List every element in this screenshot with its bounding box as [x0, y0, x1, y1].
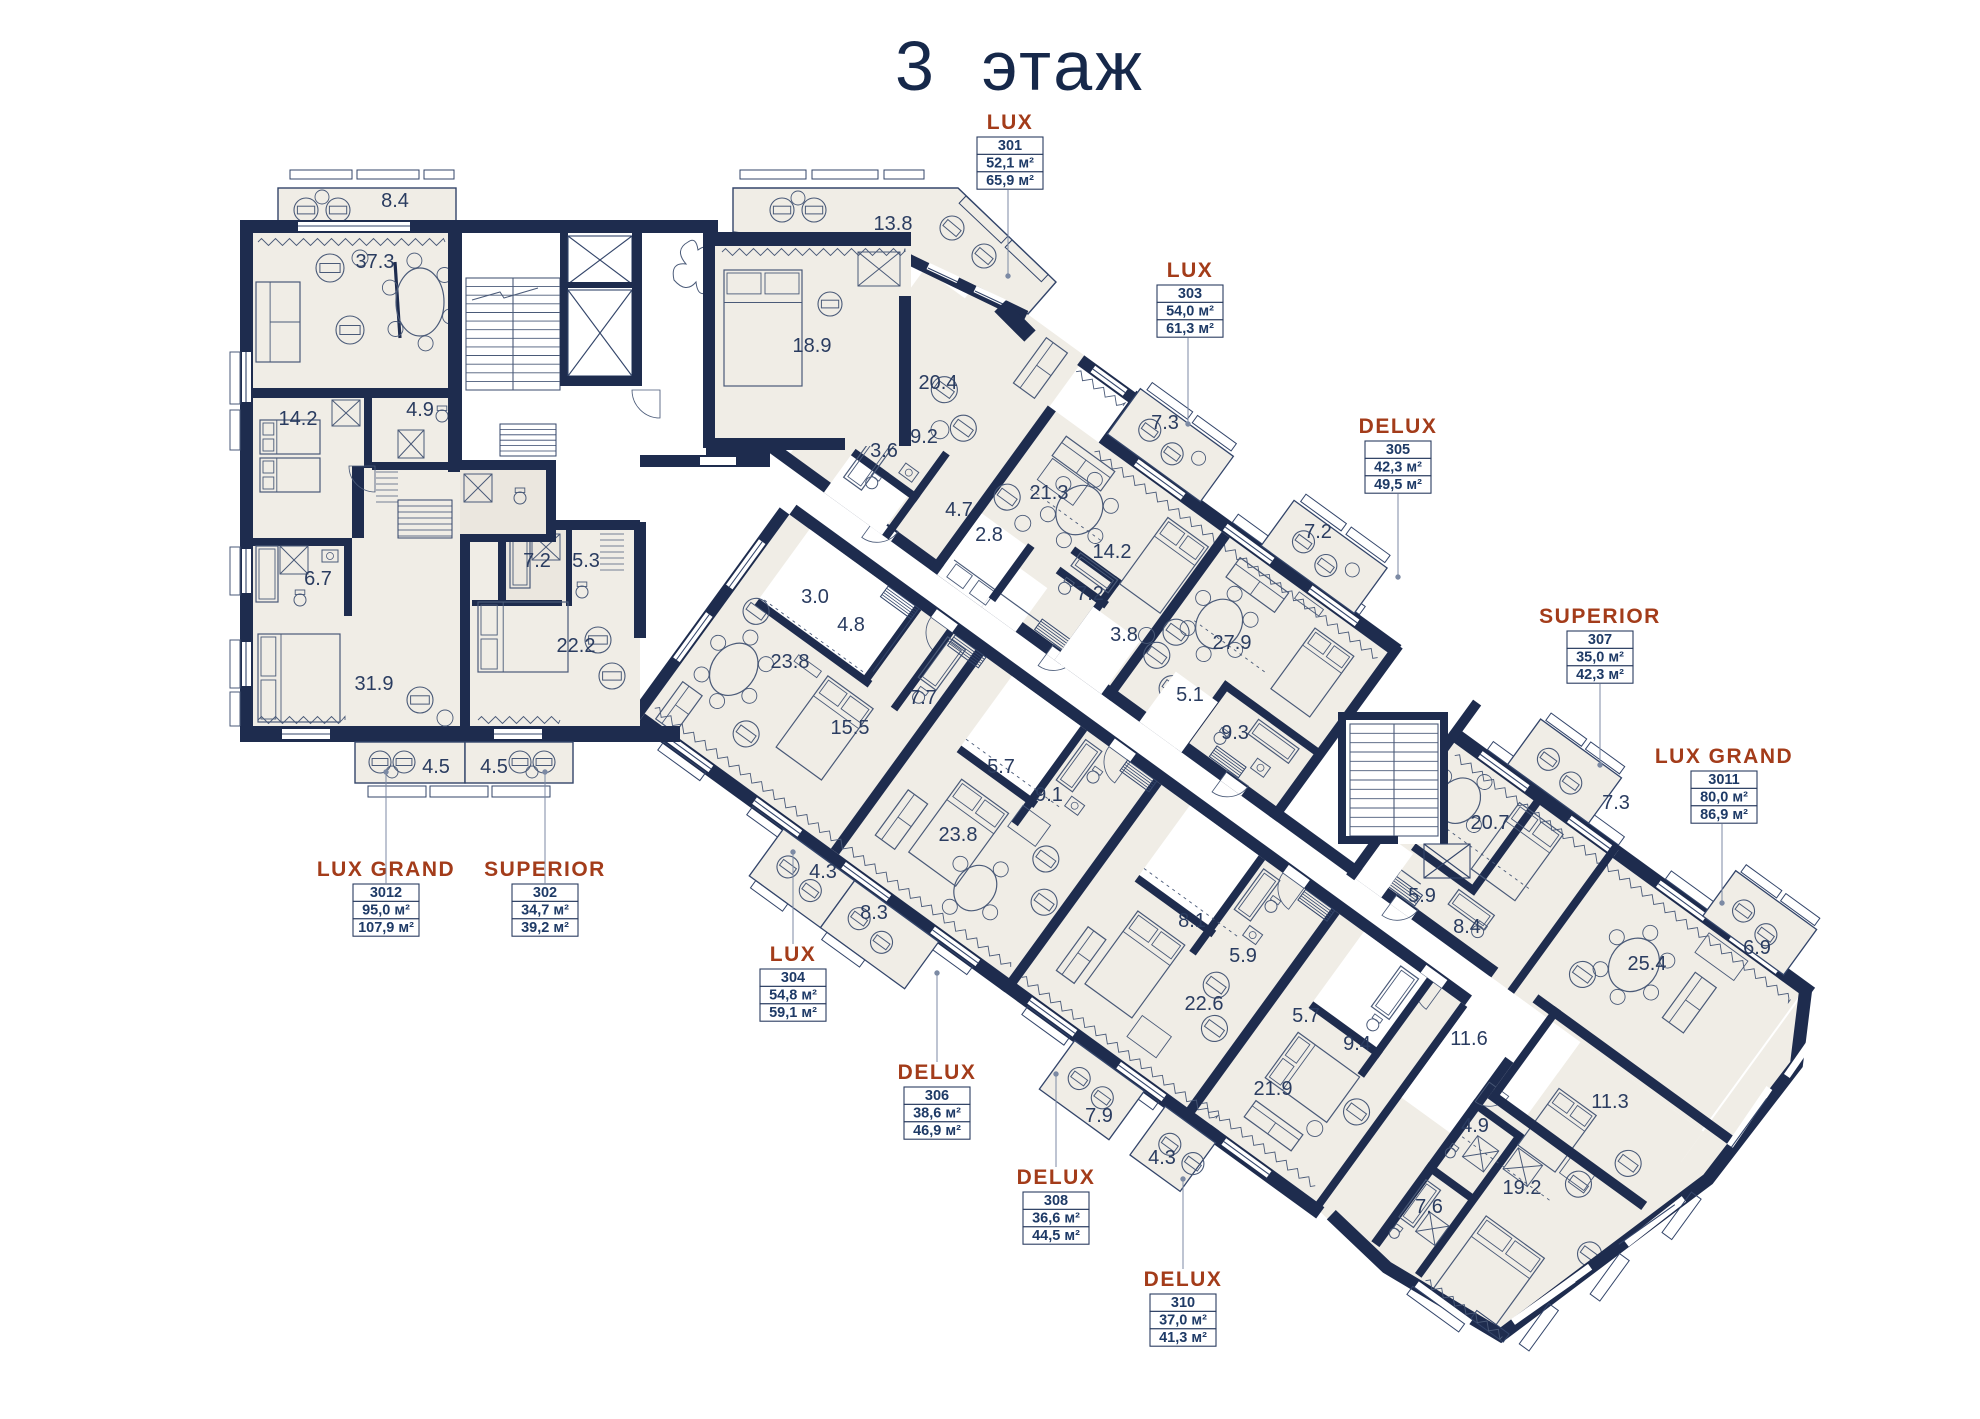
svg-text:15.5: 15.5 — [831, 717, 870, 739]
svg-text:4.3: 4.3 — [809, 861, 837, 883]
svg-text:25.4: 25.4 — [1628, 953, 1667, 975]
svg-text:14.2: 14.2 — [1093, 541, 1132, 563]
svg-text:95,0 м²: 95,0 м² — [362, 902, 410, 918]
svg-text:86,9 м²: 86,9 м² — [1700, 807, 1748, 823]
svg-text:LUX: LUX — [987, 111, 1034, 134]
svg-text:8.4: 8.4 — [381, 190, 409, 212]
svg-text:301: 301 — [998, 138, 1022, 154]
svg-text:8.1: 8.1 — [1178, 910, 1206, 932]
svg-text:38,6 м²: 38,6 м² — [913, 1105, 961, 1121]
svg-text:3.6: 3.6 — [870, 440, 898, 462]
svg-text:39,2 м²: 39,2 м² — [521, 920, 569, 936]
svg-text:4.5: 4.5 — [480, 756, 508, 778]
svg-text:42,3 м²: 42,3 м² — [1576, 667, 1624, 683]
svg-text:54,0 м²: 54,0 м² — [1166, 303, 1214, 319]
svg-text:7.6: 7.6 — [1415, 1196, 1443, 1218]
svg-text:LUX GRAND: LUX GRAND — [1655, 745, 1793, 768]
svg-text:7.9: 7.9 — [1085, 1105, 1113, 1127]
svg-text:41,3 м²: 41,3 м² — [1159, 1330, 1207, 1346]
svg-text:61,3 м²: 61,3 м² — [1166, 321, 1214, 337]
svg-text:49,5 м²: 49,5 м² — [1374, 477, 1422, 493]
svg-text:LUX: LUX — [770, 943, 817, 966]
svg-text:305: 305 — [1386, 442, 1410, 458]
svg-text:LUX: LUX — [1167, 259, 1214, 282]
svg-text:304: 304 — [781, 970, 805, 986]
svg-text:5.1: 5.1 — [1176, 684, 1204, 706]
svg-text:13.8: 13.8 — [874, 213, 913, 235]
svg-text:3.0: 3.0 — [801, 586, 829, 608]
svg-text:37,0 м²: 37,0 м² — [1159, 1312, 1207, 1328]
svg-text:2.8: 2.8 — [975, 524, 1003, 546]
svg-text:302: 302 — [533, 885, 557, 901]
svg-text:107,9 м²: 107,9 м² — [358, 920, 414, 936]
svg-text:34,7 м²: 34,7 м² — [521, 902, 569, 918]
svg-text:DELUX: DELUX — [1144, 1268, 1223, 1291]
svg-text:5.7: 5.7 — [987, 756, 1015, 778]
svg-text:4.3: 4.3 — [1148, 1147, 1176, 1169]
svg-text:14.2: 14.2 — [279, 408, 318, 430]
svg-text:303: 303 — [1178, 286, 1202, 302]
svg-text:31.9: 31.9 — [355, 673, 394, 695]
svg-text:8.4: 8.4 — [1453, 916, 1481, 938]
svg-text:4.5: 4.5 — [422, 756, 450, 778]
svg-text:7.3: 7.3 — [1151, 412, 1179, 434]
svg-text:46,9 м²: 46,9 м² — [913, 1123, 961, 1139]
svg-text:5.9: 5.9 — [1408, 885, 1436, 907]
svg-text:308: 308 — [1044, 1193, 1068, 1209]
svg-text:4.9: 4.9 — [406, 399, 434, 421]
svg-text:4.8: 4.8 — [837, 614, 865, 636]
svg-text:9.2: 9.2 — [910, 426, 938, 448]
svg-text:3 этаж: 3 этаж — [895, 27, 1145, 105]
svg-text:80,0 м²: 80,0 м² — [1700, 789, 1748, 805]
svg-text:DELUX: DELUX — [898, 1061, 977, 1084]
svg-text:SUPERIOR: SUPERIOR — [1539, 605, 1661, 628]
svg-text:307: 307 — [1588, 632, 1612, 648]
svg-text:5.3: 5.3 — [572, 550, 600, 572]
svg-text:11.6: 11.6 — [1450, 1028, 1487, 1050]
svg-text:20.4: 20.4 — [919, 372, 958, 394]
svg-text:27.9: 27.9 — [1213, 632, 1252, 654]
svg-text:7.7: 7.7 — [909, 687, 937, 709]
svg-text:44,5 м²: 44,5 м² — [1032, 1228, 1080, 1244]
svg-text:21.3: 21.3 — [1030, 482, 1069, 504]
svg-text:52,1 м²: 52,1 м² — [986, 155, 1034, 171]
svg-text:DELUX: DELUX — [1017, 1166, 1096, 1189]
svg-text:6.7: 6.7 — [304, 568, 332, 590]
svg-text:65,9 м²: 65,9 м² — [986, 173, 1034, 189]
svg-text:37.3: 37.3 — [356, 251, 395, 273]
svg-text:42,3 м²: 42,3 м² — [1374, 459, 1422, 475]
svg-text:3.8: 3.8 — [1110, 624, 1138, 646]
svg-text:19.2: 19.2 — [1503, 1177, 1542, 1199]
svg-text:23.8: 23.8 — [939, 824, 978, 846]
svg-text:5.9: 5.9 — [1229, 945, 1257, 967]
svg-text:22.2: 22.2 — [557, 635, 596, 657]
svg-text:22.6: 22.6 — [1185, 993, 1224, 1015]
svg-text:3011: 3011 — [1708, 772, 1739, 788]
svg-text:7.2: 7.2 — [1304, 521, 1332, 543]
svg-text:20.7: 20.7 — [1471, 812, 1510, 834]
svg-text:21.9: 21.9 — [1254, 1078, 1293, 1100]
svg-text:9.3: 9.3 — [1221, 722, 1249, 744]
svg-text:DELUX: DELUX — [1359, 415, 1438, 438]
svg-text:36,6 м²: 36,6 м² — [1032, 1210, 1080, 1226]
svg-text:18.9: 18.9 — [793, 335, 832, 357]
svg-text:5.7: 5.7 — [1292, 1005, 1320, 1027]
svg-text:4.7: 4.7 — [945, 499, 973, 521]
svg-text:23.8: 23.8 — [771, 651, 810, 673]
svg-text:8.3: 8.3 — [860, 902, 888, 924]
svg-text:59,1 м²: 59,1 м² — [769, 1005, 817, 1021]
svg-text:6.9: 6.9 — [1743, 937, 1771, 959]
svg-text:7.3: 7.3 — [1602, 792, 1630, 814]
svg-text:3012: 3012 — [370, 885, 402, 901]
svg-text:9.4: 9.4 — [1343, 1033, 1371, 1055]
svg-text:54,8 м²: 54,8 м² — [769, 987, 817, 1003]
svg-text:7.2: 7.2 — [1076, 583, 1104, 605]
svg-text:310: 310 — [1171, 1295, 1195, 1311]
svg-text:4.9: 4.9 — [1461, 1115, 1489, 1137]
svg-text:306: 306 — [925, 1088, 949, 1104]
svg-text:9.1: 9.1 — [1035, 784, 1063, 806]
svg-text:7.2: 7.2 — [523, 550, 551, 572]
svg-text:35,0 м²: 35,0 м² — [1576, 649, 1624, 665]
svg-text:11.3: 11.3 — [1591, 1091, 1628, 1113]
